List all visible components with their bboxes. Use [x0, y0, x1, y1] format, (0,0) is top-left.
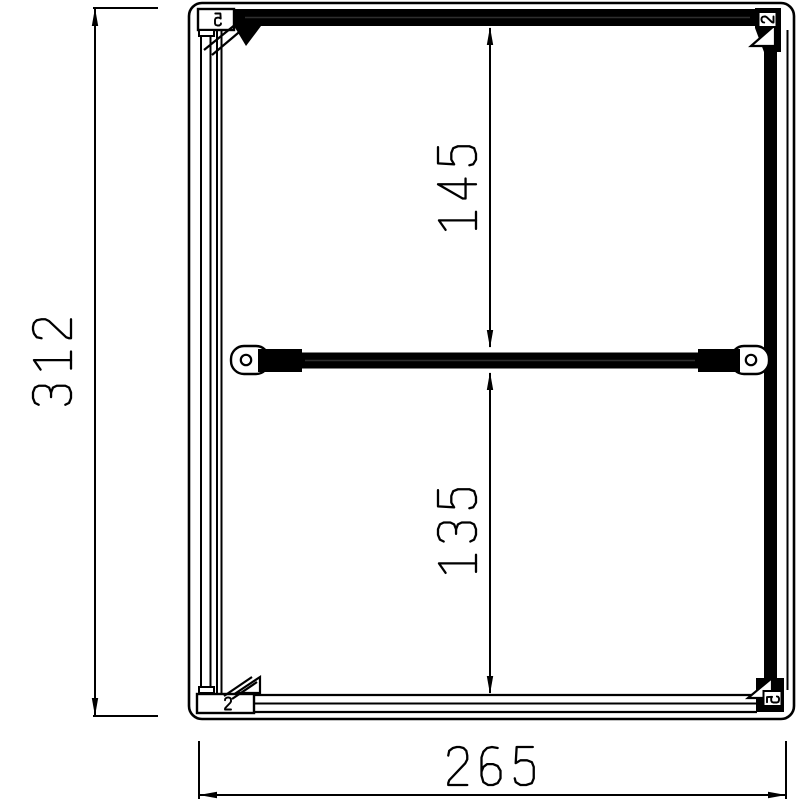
corner-bl-hook — [199, 687, 214, 693]
dim-text-overall-width-glyph-2 — [448, 747, 467, 785]
dim-text-overall-width-glyph-5 — [515, 747, 534, 785]
corner-bottom-right — [748, 678, 784, 712]
dim-text-upper-opening — [438, 146, 476, 230]
dim-text-overall-height-glyph-3 — [33, 386, 51, 405]
dim-145-arrow-up — [487, 27, 493, 45]
dim-135-arrow-down — [487, 676, 493, 694]
dim-text-overall-height-glyph-3 — [51, 386, 71, 405]
dim-135-arrow-up — [487, 372, 493, 390]
dim-text-overall-height-glyph-1 — [34, 360, 71, 370]
dim-text-lower-opening — [438, 489, 476, 573]
left-jamb-rails — [201, 31, 222, 693]
dim-text-lower-opening-glyph-5 — [438, 489, 476, 508]
crossbar-right-screw-hole — [746, 355, 756, 365]
dim-text-lower-opening-glyph-1 — [439, 563, 476, 573]
top-rail — [234, 9, 763, 26]
crossbar-left-screw-hole — [241, 355, 251, 365]
dim-overall-height — [92, 8, 158, 716]
frame-section-drawing — [0, 0, 800, 800]
dim-text-upper-opening-glyph-1 — [439, 220, 476, 230]
dim-text-upper-opening-glyph-4 — [438, 179, 476, 199]
dim-312-arrow-up — [92, 8, 98, 26]
dim-145-arrow-down — [487, 330, 493, 348]
bottom-rail — [253, 695, 757, 712]
dim-lower-opening — [487, 372, 493, 694]
dim-overall-width — [199, 741, 786, 799]
dim-text-overall-height-glyph-2 — [33, 319, 71, 338]
dim-312-arrow-down — [92, 698, 98, 716]
corner-top-right — [751, 8, 781, 52]
dim-upper-opening — [487, 27, 493, 348]
dim-265-arrow-left — [199, 792, 217, 798]
corner-tl-gusset — [234, 26, 261, 46]
corner-bottom-left — [197, 677, 260, 713]
dim-text-upper-opening-glyph-5 — [438, 146, 476, 165]
corner-tl-hook — [199, 30, 214, 36]
dimension-text-layer — [33, 14, 779, 786]
technical-drawing-canvas: 312 265 145 135 5 2 2 5 — [0, 0, 800, 800]
dim-265-arrow-right — [768, 792, 786, 798]
dim-text-overall-width — [448, 747, 534, 785]
dim-text-overall-height — [33, 319, 71, 405]
dim-text-lower-opening-glyph-3 — [438, 523, 456, 542]
dim-text-overall-width-glyph-6 — [482, 747, 501, 785]
middle-crossbar — [231, 346, 769, 374]
dim-text-lower-opening-glyph-3 — [456, 523, 476, 542]
